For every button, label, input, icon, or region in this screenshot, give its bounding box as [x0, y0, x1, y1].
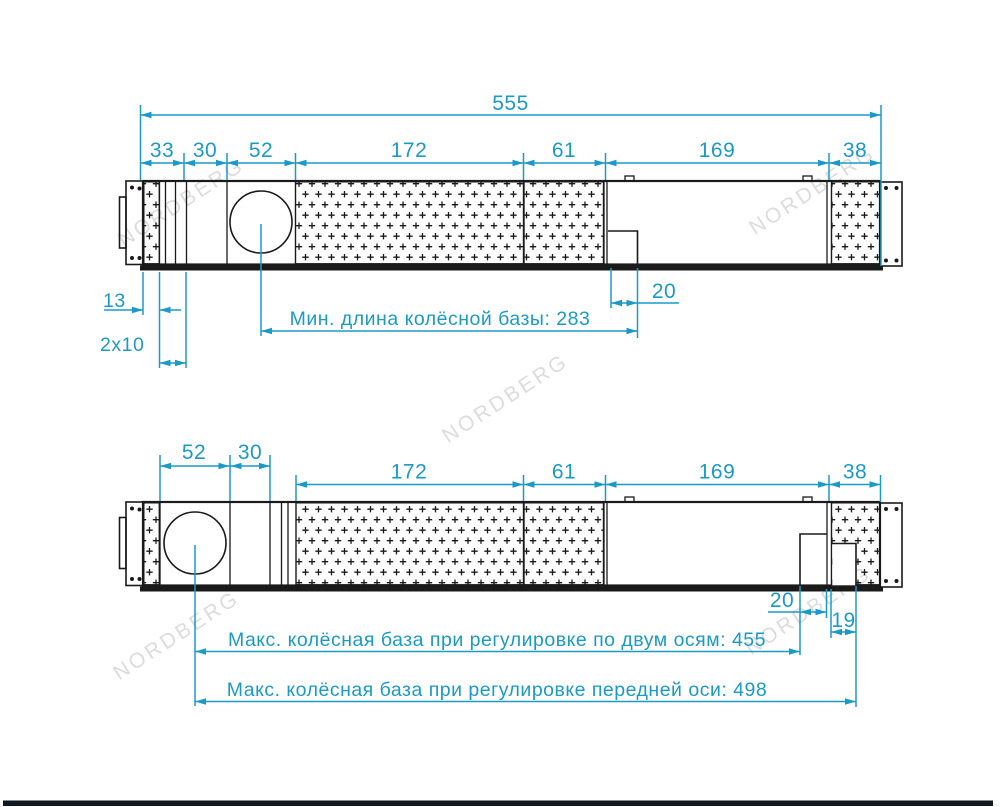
- footer-bar: [3, 801, 993, 807]
- dim-total-length: 555: [492, 92, 529, 115]
- bottom-view: 52 30 172 61 169 38 20 19 Макс. колёсная…: [120, 441, 903, 707]
- dim-segment: 172: [391, 461, 428, 484]
- watermark-text: NORDBERG: [109, 586, 243, 684]
- dim-segment: 52: [249, 139, 273, 162]
- dim-slot-pair: 2x10: [100, 334, 144, 356]
- technical-drawing: NORDBERG NORDBERG NORDBERG NORDBERG NORD…: [0, 0, 1000, 807]
- bottom-view-body: [120, 497, 903, 592]
- min-wheelbase-label: Мин. длина колёсной базы: 283: [290, 308, 591, 330]
- dim-plate-offset: 20: [652, 280, 676, 303]
- slide-plate-cutout: [832, 544, 855, 585]
- dim-segment: 172: [391, 139, 428, 162]
- hatch-plate-left: [144, 503, 160, 585]
- dim-segment: 33: [150, 139, 174, 162]
- dim-segment: 30: [238, 441, 262, 464]
- hatch-plate-61: [524, 503, 604, 585]
- dim-segment: 52: [182, 441, 206, 464]
- base-rail: [140, 266, 883, 271]
- hatch-plate-61: [524, 182, 604, 264]
- top-view: 555 33 30 52 172 61 169 38 13 2x10 20 Ми…: [100, 92, 902, 368]
- watermark-text: NORDBERG: [114, 153, 248, 251]
- dim-segment: 169: [699, 461, 736, 484]
- watermark-text: NORDBERG: [438, 349, 572, 447]
- slide-plate-step: [800, 534, 827, 586]
- slide-plate-step: [608, 231, 638, 264]
- top-view-body: [120, 176, 903, 271]
- dim-edge-offset: 13: [103, 290, 126, 312]
- max-wheelbase-two-axes-label: Макс. колёсная база при регулировке по д…: [228, 629, 766, 651]
- hatch-plate-left: [144, 182, 160, 264]
- dim-segment: 61: [552, 139, 576, 162]
- left-end-cap: [126, 502, 143, 586]
- dim-segment: 30: [193, 139, 217, 162]
- hatch-plate-172: [296, 503, 524, 585]
- drawing-canvas: NORDBERG NORDBERG NORDBERG NORDBERG NORD…: [0, 0, 1000, 807]
- dim-segment: 38: [843, 461, 867, 484]
- hatch-plate-38: [832, 182, 881, 264]
- dim-segment: 38: [843, 139, 867, 162]
- dim-edge-offset: 19: [831, 609, 855, 632]
- right-end-cap: [880, 182, 902, 266]
- left-end-tab: [120, 518, 127, 569]
- dim-plate-offset: 20: [770, 589, 794, 612]
- dim-segment: 61: [552, 461, 576, 484]
- hatch-plate-172: [296, 182, 524, 264]
- max-wheelbase-front-axis-label: Макс. колёсная база при регулировке пере…: [227, 679, 767, 701]
- right-end-cap: [880, 503, 902, 587]
- dim-segment: 169: [699, 139, 736, 162]
